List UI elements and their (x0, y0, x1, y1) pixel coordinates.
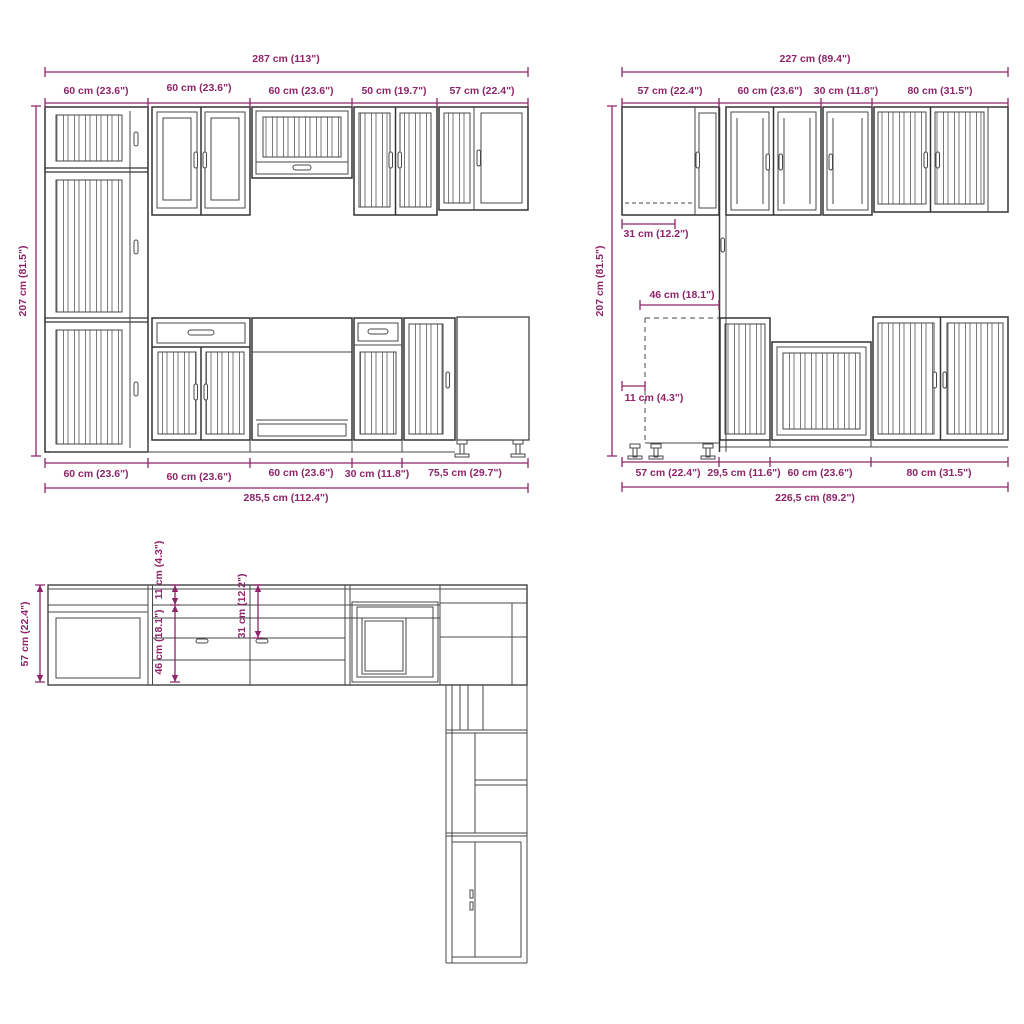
dim-left-bottom-seg-0: 60 cm (23.6") (63, 468, 128, 480)
dimension-arrowheads (37, 585, 261, 682)
dim-left-bottom-seg-1: 60 cm (23.6") (166, 471, 231, 483)
dim-left-height: 207 cm (81.5") (17, 246, 29, 317)
dim-left-top-seg-4: 57 cm (22.4") (449, 85, 514, 97)
cabinet-line-art (0, 0, 1024, 1024)
dim-right-top-seg-3: 80 cm (31.5") (907, 85, 972, 97)
dim-left-bottom-seg-3: 30 cm (11.8") (345, 468, 410, 480)
dim-right-corner-depth: 31 cm (12.2") (623, 228, 688, 240)
dim-left-total-bottom: 285,5 cm (112.4") (244, 492, 329, 504)
dim-right-height: 207 cm (81.5") (594, 246, 606, 317)
dim-right-recess-width: 46 cm (18.1") (649, 289, 714, 301)
dim-right-top-seg-1: 60 cm (23.6") (737, 85, 802, 97)
plan-view-art (48, 585, 527, 963)
dim-right-top-seg-2: 30 cm (11.8") (814, 85, 879, 97)
dim-right-bottom-seg-3: 80 cm (31.5") (906, 467, 971, 479)
front-view-left-art (45, 107, 529, 457)
dim-plan-depth: 57 cm (22.4") (19, 601, 31, 666)
dim-left-top-seg-0: 60 cm (23.6") (63, 85, 128, 97)
dim-left-top-seg-1: 60 cm (23.6") (166, 82, 231, 94)
dim-right-bottom-seg-1: 29,5 cm (11.6") (707, 467, 780, 479)
front-view-right-art (622, 107, 1008, 459)
dim-left-total-top: 287 cm (113") (252, 53, 319, 65)
dim-left-top-seg-3: 50 cm (19.7") (361, 85, 426, 97)
dim-right-bottom-seg-0: 57 cm (22.4") (635, 467, 700, 479)
technical-drawing-page: 287 cm (113") 60 cm (23.6") 60 cm (23.6"… (0, 0, 1024, 1024)
dim-right-total-bottom: 226,5 cm (89.2") (775, 492, 855, 504)
dim-left-top-seg-2: 60 cm (23.6") (268, 85, 333, 97)
dim-plan-recess-46: 46 cm (18.1") (153, 609, 165, 674)
dim-left-bottom-seg-2: 60 cm (23.6") (268, 467, 333, 479)
dim-right-top-seg-0: 57 cm (22.4") (637, 85, 702, 97)
dim-right-bottom-seg-2: 60 cm (23.6") (787, 467, 852, 479)
dim-right-side-offset: 11 cm (4.3") (625, 392, 684, 404)
dim-right-total-top: 227 cm (89.4") (780, 53, 851, 65)
dim-left-bottom-seg-4: 75,5 cm (29.7") (428, 467, 502, 479)
dim-plan-depth-31: 31 cm (12.2") (236, 573, 248, 638)
dim-plan-offset-11: 11 cm (4.3") (153, 541, 165, 600)
